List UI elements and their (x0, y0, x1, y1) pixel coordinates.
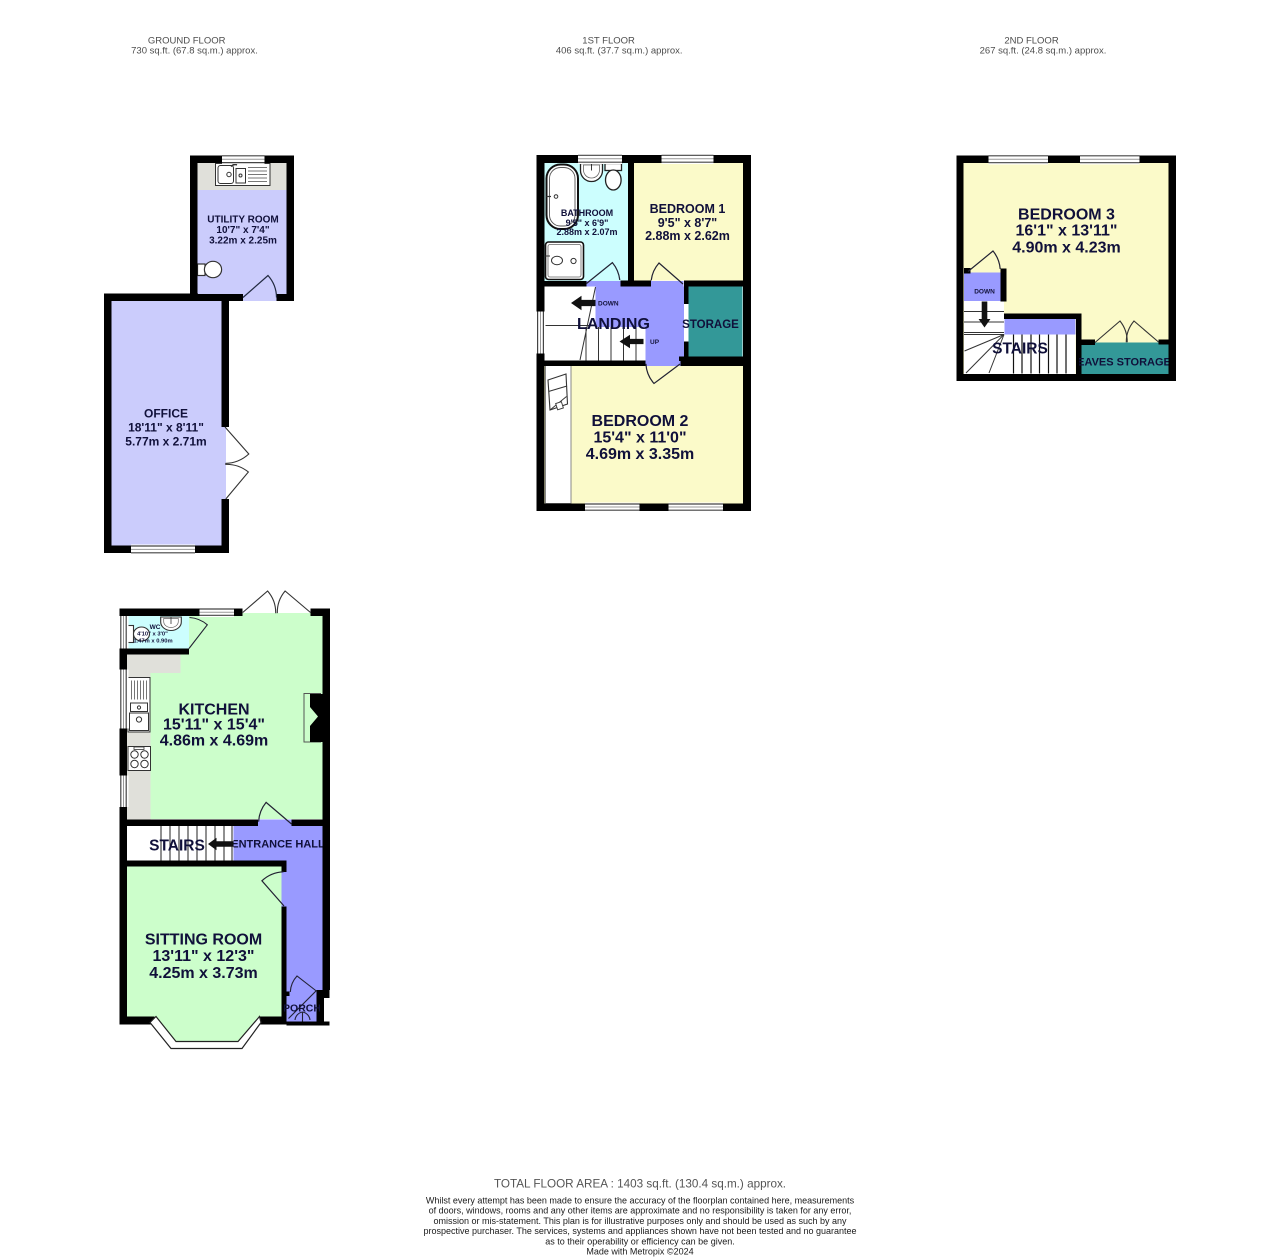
svg-text:4.86m x 4.69m: 4.86m x 4.69m (160, 733, 269, 750)
svg-text:UTILITY ROOM: UTILITY ROOM (207, 215, 278, 226)
svg-text:267 sq.ft. (24.8 sq.m.) approx: 267 sq.ft. (24.8 sq.m.) approx. (980, 46, 1107, 57)
svg-text:4.69m x 3.35m: 4.69m x 3.35m (586, 446, 695, 463)
svg-text:BEDROOM 3: BEDROOM 3 (1018, 206, 1115, 223)
svg-text:15'4" x 11'0": 15'4" x 11'0" (593, 429, 686, 446)
svg-text:TOTAL FLOOR AREA : 1403 sq.ft.: TOTAL FLOOR AREA : 1403 sq.ft. (130.4 sq… (494, 1178, 786, 1191)
svg-text:DOWN: DOWN (598, 301, 619, 308)
svg-text:EAVES STORAGE: EAVES STORAGE (1077, 357, 1171, 369)
svg-text:BATHROOM: BATHROOM (561, 208, 613, 218)
svg-text:406 sq.ft. (37.7 sq.m.) approx: 406 sq.ft. (37.7 sq.m.) approx. (556, 46, 683, 57)
svg-text:Made with Metropix ©2024: Made with Metropix ©2024 (586, 1247, 693, 1257)
svg-text:18'11" x 8'11": 18'11" x 8'11" (128, 421, 204, 435)
svg-text:13'11" x 12'3": 13'11" x 12'3" (153, 948, 255, 965)
svg-text:5.77m x 2.71m: 5.77m x 2.71m (125, 435, 206, 449)
svg-text:OFFICE: OFFICE (144, 407, 188, 421)
svg-text:DOWN: DOWN (974, 289, 995, 296)
svg-text:4.25m x 3.73m: 4.25m x 3.73m (149, 965, 258, 982)
svg-text:730 sq.ft. (67.8 sq.m.) approx: 730 sq.ft. (67.8 sq.m.) approx. (131, 46, 258, 57)
svg-text:1.47m x 0.90m: 1.47m x 0.90m (133, 639, 172, 645)
svg-text:4.90m x 4.23m: 4.90m x 4.23m (1012, 239, 1121, 256)
svg-text:9'5" x 8'7": 9'5" x 8'7" (658, 216, 718, 230)
svg-text:3.22m x 2.25m: 3.22m x 2.25m (209, 236, 277, 247)
svg-text:2.88m x 2.62m: 2.88m x 2.62m (645, 229, 730, 243)
svg-text:SITTING ROOM: SITTING ROOM (145, 932, 262, 949)
svg-text:15'11" x 15'4": 15'11" x 15'4" (163, 717, 265, 734)
svg-text:STAIRS: STAIRS (992, 341, 1048, 358)
svg-text:as to their operability or eff: as to their operability or efficiency ca… (545, 1236, 734, 1246)
svg-text:prospective purchaser. The ser: prospective purchaser. The services, sys… (423, 1226, 856, 1236)
svg-text:Whilst every attempt has been: Whilst every attempt has been made to en… (426, 1196, 855, 1206)
svg-text:STORAGE: STORAGE (682, 319, 739, 331)
svg-text:4'10" x 3'0": 4'10" x 3'0" (137, 632, 168, 638)
svg-text:PORCH: PORCH (283, 1003, 321, 1015)
svg-text:of doors, windows, rooms and a: of doors, windows, rooms and any other i… (429, 1206, 852, 1216)
svg-text:LANDING: LANDING (577, 316, 650, 333)
svg-text:2.88m x 2.07m: 2.88m x 2.07m (556, 227, 617, 237)
svg-text:16'1" x 13'11": 16'1" x 13'11" (1016, 222, 1118, 239)
svg-text:10'7" x 7'4": 10'7" x 7'4" (216, 225, 269, 236)
svg-text:UP: UP (650, 339, 660, 346)
svg-text:WC: WC (150, 624, 161, 631)
svg-text:BEDROOM 2: BEDROOM 2 (592, 413, 689, 430)
svg-text:ENTRANCE HALL: ENTRANCE HALL (231, 839, 325, 851)
svg-text:omission or mis-statement. Thi: omission or mis-statement. This plan is … (433, 1216, 847, 1226)
svg-text:STAIRS: STAIRS (149, 838, 205, 855)
svg-text:BEDROOM 1: BEDROOM 1 (650, 202, 726, 216)
